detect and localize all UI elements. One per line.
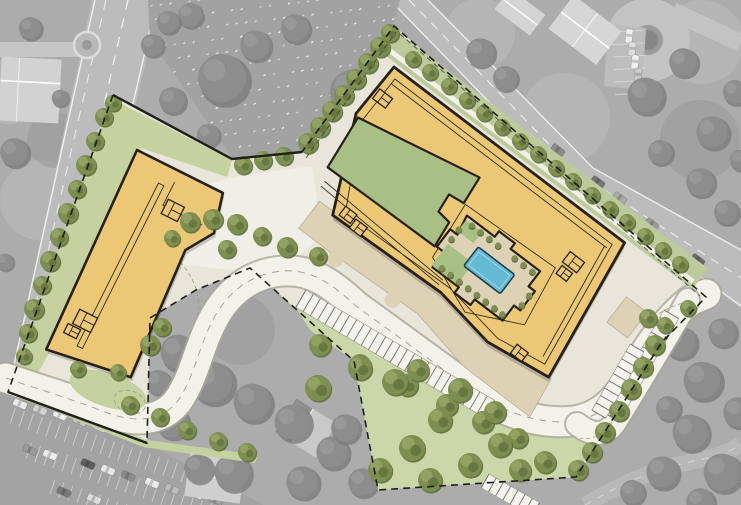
site-plan-rendering [0, 0, 741, 505]
car-icon [631, 55, 639, 70]
car-icon [628, 42, 636, 57]
site-plan-canvas [0, 0, 741, 505]
car-icon [625, 29, 633, 44]
existing-house [0, 56, 62, 123]
island-tree-icon [82, 40, 92, 50]
